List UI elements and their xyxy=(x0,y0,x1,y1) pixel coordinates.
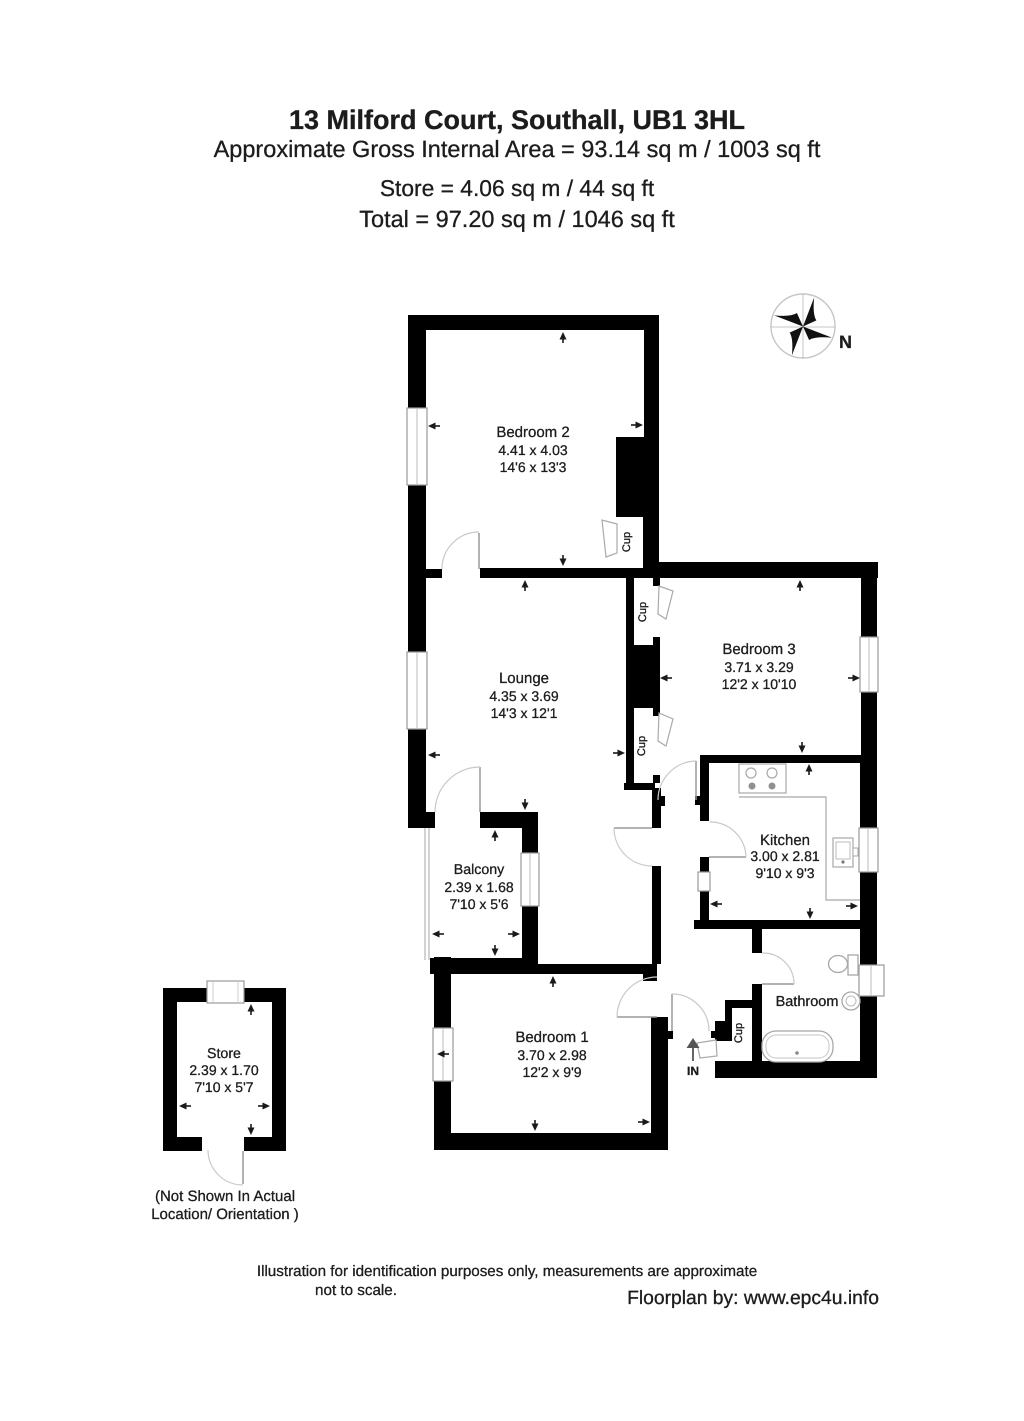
svg-text:14'3 x 12'1: 14'3 x 12'1 xyxy=(491,705,558,721)
svg-text:12'2 x 10'10: 12'2 x 10'10 xyxy=(722,676,797,692)
svg-text:Cup: Cup xyxy=(733,1023,745,1043)
svg-text:2.39 x 1.68: 2.39 x 1.68 xyxy=(444,879,513,895)
svg-text:(Not Shown In Actual: (Not Shown In Actual xyxy=(155,1188,295,1205)
svg-text:Bedroom 1: Bedroom 1 xyxy=(515,1029,588,1046)
svg-text:9'10 x 9'3: 9'10 x 9'3 xyxy=(755,865,814,881)
svg-text:not to scale.: not to scale. xyxy=(315,1282,397,1299)
svg-text:3.70 x 2.98: 3.70 x 2.98 xyxy=(517,1047,586,1063)
svg-text:Floorplan by: www.epc4u.info: Floorplan by: www.epc4u.info xyxy=(627,1288,879,1309)
svg-text:7'10 x 5'7: 7'10 x 5'7 xyxy=(194,1079,253,1095)
svg-text:Cup: Cup xyxy=(637,602,649,622)
svg-text:14'6 x 13'3: 14'6 x 13'3 xyxy=(500,459,567,475)
svg-text:Location/ Orientation ): Location/ Orientation ) xyxy=(151,1206,299,1223)
svg-text:2.39 x 1.70: 2.39 x 1.70 xyxy=(189,1062,258,1078)
svg-text:13 Milford Court, Southall, UB: 13 Milford Court, Southall, UB1 3HL xyxy=(289,105,745,135)
svg-text:3.71 x 3.29: 3.71 x 3.29 xyxy=(724,659,793,675)
svg-text:Bedroom 3: Bedroom 3 xyxy=(722,641,795,658)
svg-text:IN: IN xyxy=(687,1064,699,1078)
svg-text:4.35 x 3.69: 4.35 x 3.69 xyxy=(489,688,558,704)
svg-text:Lounge: Lounge xyxy=(499,670,549,687)
svg-text:3.00 x 2.81: 3.00 x 2.81 xyxy=(750,848,819,864)
svg-text:Cup: Cup xyxy=(621,532,633,552)
svg-text:Total = 97.20 sq m / 1046 sq f: Total = 97.20 sq m / 1046 sq ft xyxy=(359,206,675,232)
svg-text:Store: Store xyxy=(207,1046,241,1062)
svg-text:7'10 x 5'6: 7'10 x 5'6 xyxy=(449,896,508,912)
svg-text:Illustration for identificatio: Illustration for identification purposes… xyxy=(257,1263,757,1280)
svg-text:Cup: Cup xyxy=(636,736,648,756)
svg-text:Store = 4.06 sq m / 44 sq ft: Store = 4.06 sq m / 44 sq ft xyxy=(380,175,655,201)
svg-text:Balcony: Balcony xyxy=(454,862,505,878)
svg-text:Bathroom: Bathroom xyxy=(776,994,839,1010)
svg-text:4.41 x 4.03: 4.41 x 4.03 xyxy=(498,442,567,458)
svg-text:Approximate Gross Internal Are: Approximate Gross Internal Area = 93.14 … xyxy=(214,136,821,162)
svg-text:12'2 x 9'9: 12'2 x 9'9 xyxy=(522,1064,581,1080)
svg-text:Kitchen: Kitchen xyxy=(760,832,810,849)
svg-text:Bedroom 2: Bedroom 2 xyxy=(496,424,569,441)
svg-text:N: N xyxy=(839,332,852,352)
